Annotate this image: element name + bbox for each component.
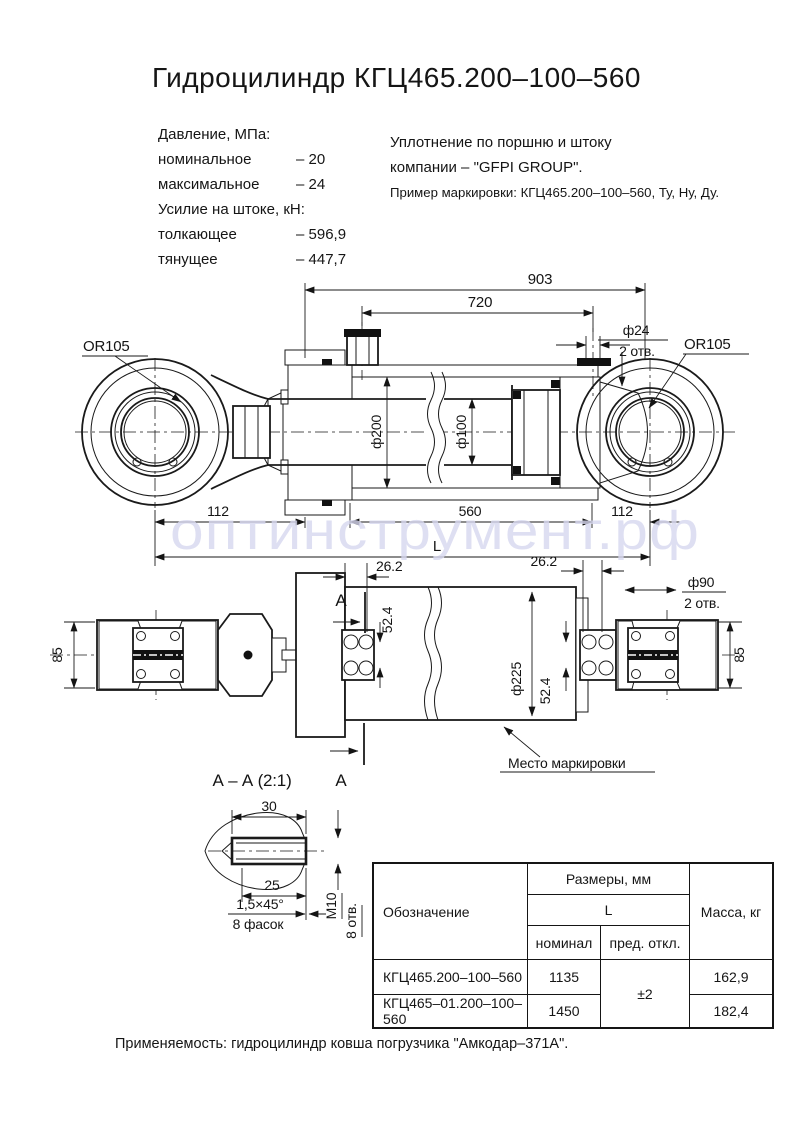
table-row: КГЦ465.200–100–560 1135 ±2 162,9	[373, 960, 773, 995]
spec-value: – 596,9	[296, 222, 346, 247]
drawing-title: Гидроцилиндр КГЦ465.200–100–560	[0, 62, 793, 94]
chamfer-label: 1,5×45°	[236, 896, 283, 912]
spec-row: номинальное – 20	[158, 147, 388, 172]
col-mass: Масса, кг	[690, 863, 774, 960]
detail-title: А – А (2:1)	[212, 771, 291, 790]
section-letter-top: А	[335, 591, 347, 610]
seal-note-line1: Уплотнение по поршню и штоку	[390, 130, 750, 155]
spec-value: – 20	[296, 147, 325, 172]
dim-225: ф225	[508, 662, 524, 696]
spec-label: толкающее	[158, 222, 296, 247]
table-row: КГЦ465–01.200–100–560 1450 182,4	[373, 995, 773, 1029]
spec-row: толкающее – 596,9	[158, 222, 388, 247]
pressure-header: Давление, МПа:	[158, 122, 388, 147]
col-L: L	[528, 895, 690, 926]
or105-right-label: OR105	[684, 336, 731, 353]
cell-tolerance: ±2	[601, 960, 690, 1029]
size-table: Обозначение Размеры, мм Масса, кг L номи…	[372, 862, 774, 1029]
cell-designation: КГЦ465.200–100–560	[373, 960, 528, 995]
drawing-sheet: OR105 OR105 903 720 ф24 2 отв. ф200	[0, 0, 793, 1123]
dim-52-left: 52.4	[379, 606, 395, 633]
watermark: оптинструмент.рф	[170, 501, 700, 561]
detail-a-a: А – А (2:1) 30 25 1,5×45° 8 фасок М10 8 …	[205, 771, 362, 939]
cell-designation: КГЦ465–01.200–100–560	[373, 995, 528, 1029]
spec-value: – 24	[296, 172, 325, 197]
dim-903: 903	[528, 271, 552, 288]
cell-nominal: 1450	[528, 995, 601, 1029]
dim-bore: ф200	[368, 415, 384, 449]
dim-hole-count: 2 отв.	[684, 595, 720, 611]
left-eye-plan	[97, 620, 218, 690]
top-port-fitting	[344, 329, 381, 365]
col-tolerance: пред. откл.	[601, 926, 690, 960]
break-lines	[426, 372, 446, 487]
spec-label: максимальное	[158, 172, 296, 197]
dim-85-right: 85	[731, 647, 747, 663]
seal-note: Уплотнение по поршню и штоку компании – …	[390, 130, 750, 205]
col-sizes: Размеры, мм	[528, 863, 690, 895]
cell-mass: 182,4	[690, 995, 774, 1029]
clevis-and-body-plan	[218, 573, 588, 737]
dim-port-holes: 2 отв.	[619, 343, 655, 359]
section-letter-bottom: А	[335, 771, 347, 790]
top-view: 85 85 26.2 26.2 ф90 2 отв. 52.4 5	[49, 553, 747, 790]
dim-720: 720	[468, 294, 492, 311]
seal-note-line3: Пример маркировки: КГЦ465.200–100–560, Т…	[390, 180, 750, 205]
cell-nominal: 1135	[528, 960, 601, 995]
marking-label: Место маркировки	[508, 755, 625, 771]
cell-mass: 162,9	[690, 960, 774, 995]
col-nominal: номинал	[528, 926, 601, 960]
spec-label: номинальное	[158, 147, 296, 172]
or105-left-label: OR105	[83, 338, 130, 355]
dim-26-left: 26.2	[376, 558, 403, 574]
dim-52-right: 52.4	[537, 677, 553, 704]
thread-label: М10	[323, 892, 339, 919]
dim-rod: ф100	[453, 415, 469, 449]
spec-row: максимальное – 24	[158, 172, 388, 197]
spec-row: тянущее – 447,7	[158, 247, 388, 272]
dim-25: 25	[264, 877, 280, 893]
dim-hole-dia: ф90	[688, 574, 715, 590]
chamfer-count-label: 8 фасок	[233, 916, 285, 932]
main-section-view: OR105 OR105 903 720 ф24 2 отв. ф200	[75, 271, 749, 566]
dim-30: 30	[261, 798, 277, 814]
gland-head	[281, 350, 352, 515]
right-eye-plan	[616, 620, 718, 690]
piston-rod	[268, 385, 512, 480]
dim-26-right: 26.2	[531, 553, 558, 569]
seal-note-line2: компании – "GFPI GROUP".	[390, 155, 750, 180]
dim-port-dia: ф24	[623, 322, 650, 338]
dim-85-left: 85	[49, 647, 65, 663]
application-note: Применяемость: гидроцилиндр ковша погруз…	[115, 1036, 715, 1052]
thread-count-label: 8 отв.	[343, 903, 359, 939]
spec-value: – 447,7	[296, 247, 346, 272]
col-designation: Обозначение	[373, 863, 528, 960]
spec-block: Давление, МПа: номинальное – 20 максимал…	[158, 122, 388, 272]
force-header: Усилие на штоке, кН:	[158, 197, 388, 222]
cylinder-tube	[352, 365, 598, 500]
spec-label: тянущее	[158, 247, 296, 272]
